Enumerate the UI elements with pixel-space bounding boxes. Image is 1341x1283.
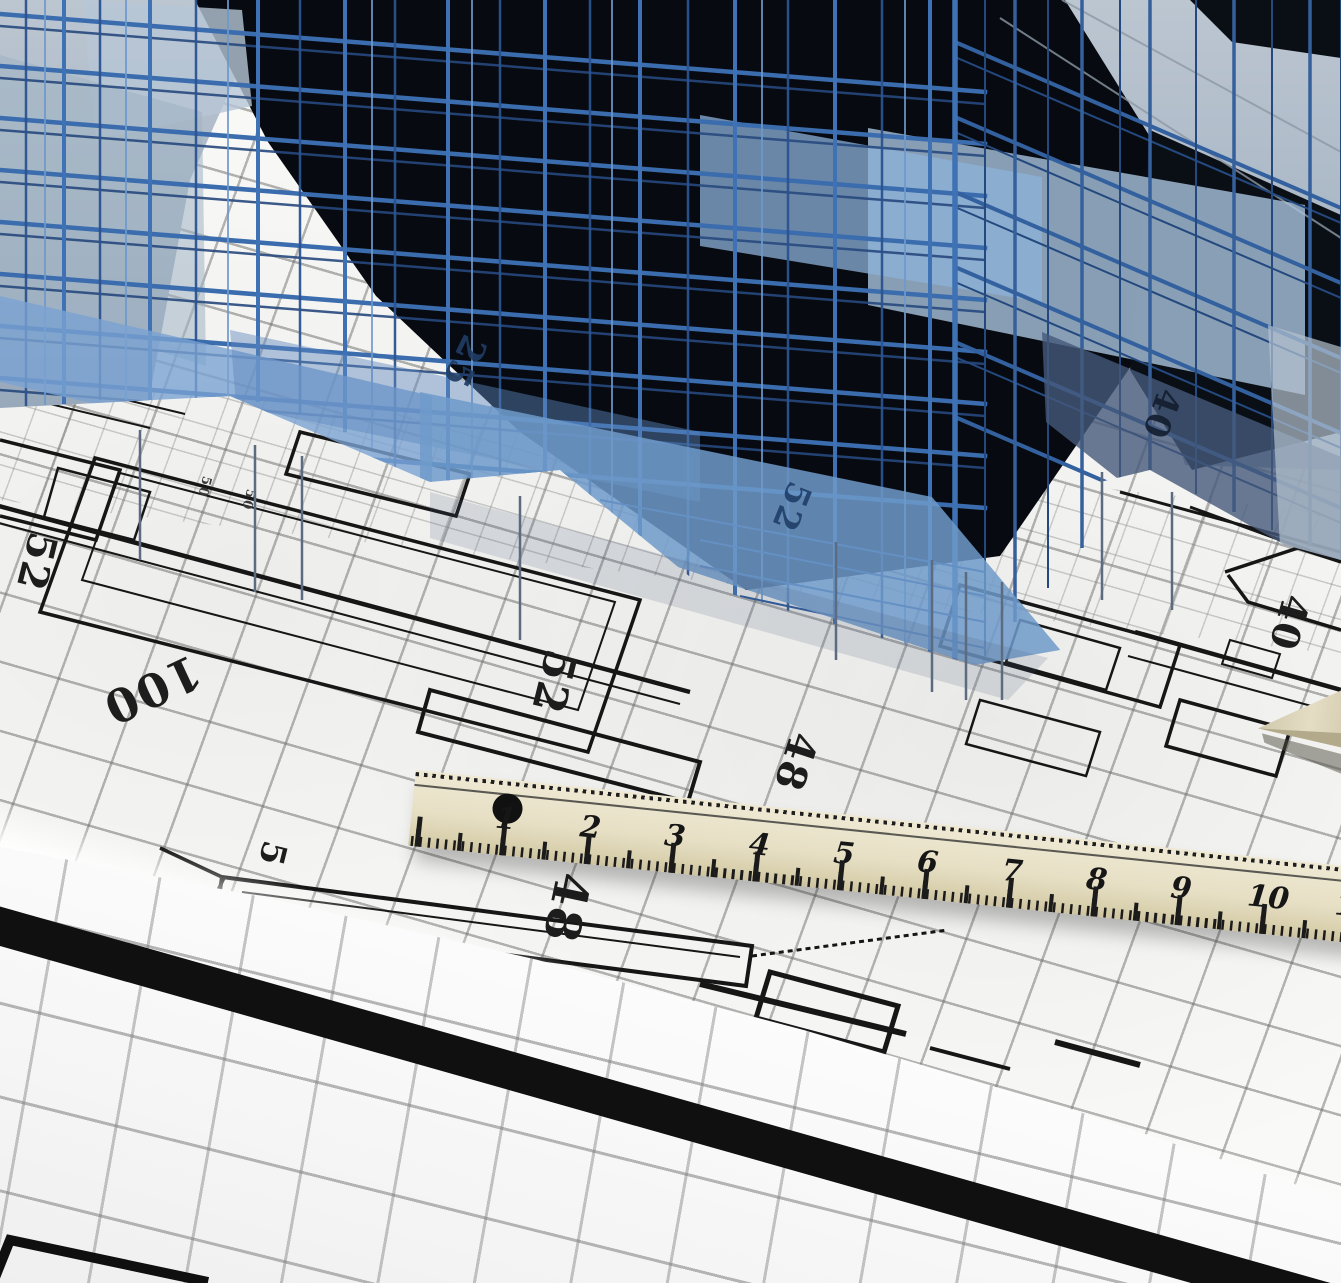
dimension-label-48-large: 48 bbox=[535, 868, 597, 947]
wireframe-building-model bbox=[0, 0, 1341, 700]
corner-plan-rectangle bbox=[0, 1240, 208, 1282]
blueprint-scene: 100 52 48 40 52 5 48 50 50 bbox=[0, 0, 1341, 1283]
